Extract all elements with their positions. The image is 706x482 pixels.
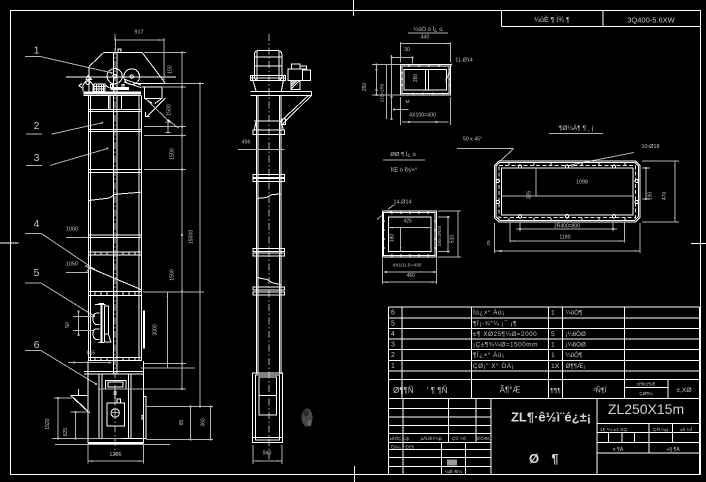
svg-text:1500: 1500	[167, 104, 173, 116]
svg-text:Ð£¶: Ð£¶	[405, 444, 414, 449]
svg-text:1000: 1000	[66, 227, 78, 233]
svg-text:»§ ¶Á: »§ ¶Á	[666, 446, 680, 453]
svg-text:360: 360	[201, 418, 207, 427]
svg-text:1520: 1520	[45, 418, 51, 429]
svg-text:¤ ¶Á: ¤ ¶Á	[613, 446, 624, 453]
svg-text:±h ¼f: ±h ¼f	[680, 427, 693, 433]
svg-text:260: 260	[413, 74, 419, 83]
svg-text:Ø¶¶Ñ: Ø¶¶Ñ	[393, 386, 414, 395]
svg-text:ÏŒ ò Ðý×°: ÏŒ ò Ðý×°	[391, 167, 418, 174]
svg-text:25: 25	[486, 240, 492, 246]
svg-text:10-Ø18: 10-Ø18	[642, 144, 660, 150]
svg-text:440: 440	[421, 35, 430, 41]
svg-text:±¶ XØ25¶¼Ø=2000: ±¶ XØ25¶¼Ø=2000	[473, 331, 537, 338]
svg-text:4X101.5=430: 4X101.5=430	[393, 262, 422, 268]
svg-text:¶¶¶: ¶¶¶	[550, 388, 561, 395]
svg-text:3: 3	[391, 342, 395, 349]
svg-text:14-Ø14: 14-Ø14	[394, 199, 412, 205]
svg-text:470: 470	[662, 192, 668, 201]
svg-text:2: 2	[391, 352, 395, 359]
svg-text:1: 1	[551, 352, 555, 359]
svg-text:¡¼6ÒØ: ¡¼6ÒØ	[566, 342, 586, 349]
svg-text:85: 85	[179, 420, 185, 426]
svg-text:15000: 15000	[189, 230, 195, 245]
svg-text:¶: ¶	[551, 451, 558, 466]
svg-text:Éè¼: Éè¼	[391, 443, 401, 449]
svg-text:±Ï¶X±¶Æ: ±Ï¶X±¶Æ	[637, 381, 656, 387]
svg-text:1500: 1500	[170, 148, 176, 160]
svg-text:5: 5	[391, 320, 395, 327]
svg-text:1: 1	[551, 310, 555, 317]
svg-text:¼ûÒ¶: ¼ûÒ¶	[566, 310, 583, 317]
svg-text:325: 325	[527, 191, 533, 200]
svg-text:50 x 45°: 50 x 45°	[463, 137, 482, 143]
svg-text:¼ûÒ¶: ¼ûÒ¶	[566, 352, 583, 359]
svg-text:6: 6	[391, 310, 395, 317]
svg-text:1286: 1286	[109, 452, 121, 458]
svg-text:1180: 1180	[559, 235, 570, 241]
svg-text:150: 150	[168, 65, 174, 74]
svg-text:180: 180	[389, 234, 395, 243]
svg-text:ÇØ¶¼: ÇØ¶¼	[639, 391, 652, 396]
svg-text:6: 6	[34, 339, 40, 351]
svg-text:190: 190	[648, 192, 654, 201]
svg-text:¶Ø¼À¶ ¶ ¸ j: ¶Ø¼À¶ ¶ ¸ j	[559, 123, 593, 132]
svg-text:1X: 1X	[551, 363, 560, 370]
svg-text:1050: 1050	[66, 262, 78, 268]
svg-text:¼ûÈ ¶ Ì¾ ¶: ¼ûÈ ¶ Ì¾ ¶	[534, 15, 570, 24]
svg-text:ÈÕÆÚ: ÈÕÆÚ	[477, 435, 492, 441]
svg-text:3000: 3000	[153, 324, 159, 336]
svg-text:ZL250X15m: ZL250X15m	[608, 401, 684, 417]
svg-text:5: 5	[34, 267, 40, 279]
svg-text:865: 865	[87, 351, 96, 357]
svg-text:ÇØ¡" X° ÒÀ¡: ÇØ¡" X° ÒÀ¡	[473, 361, 514, 370]
svg-text:¼ûÓ ó Ï¿ ú: ¼ûÓ ó Ï¿ ú	[414, 26, 443, 33]
svg-text:²Ñ¶Ï: ²Ñ¶Ï	[593, 386, 606, 395]
svg-text:240=2Ŕ20: 240=2Ŕ20	[437, 225, 442, 246]
svg-text:1098: 1098	[576, 180, 588, 186]
svg-text:3Q400-5.6XW: 3Q400-5.6XW	[627, 16, 675, 25]
svg-text:5: 5	[551, 331, 555, 338]
svg-text:1: 1	[551, 342, 555, 349]
svg-text:2: 2	[34, 120, 40, 132]
svg-text:ØØ ¶ Ï¿ ú: ØØ ¶ Ï¿ ú	[390, 151, 415, 158]
svg-text:825: 825	[63, 428, 69, 437]
svg-text:215=2Ŕ5: 215=2Ŕ5	[379, 83, 385, 102]
svg-text:¼Ø Æ¼: ¼Ø Æ¼	[445, 469, 462, 474]
svg-text:M: M	[406, 99, 410, 105]
svg-text:510: 510	[449, 235, 455, 244]
svg-text:940: 940	[263, 450, 272, 456]
svg-text:Ïü¿×° Àü¡: Ïü¿×° Àü¡	[473, 308, 505, 317]
svg-text:250: 250	[362, 83, 368, 92]
svg-text:917: 917	[134, 30, 143, 36]
svg-text:¡Ç±¶¾¼Ø=1500mm: ¡Ç±¶¾¼Ø=1500mm	[473, 342, 538, 349]
svg-text:±êÔÇ ¼þ: ±êÔÇ ¼þ	[390, 435, 410, 441]
svg-text:1500: 1500	[170, 269, 176, 281]
svg-text:3: 3	[34, 152, 40, 164]
svg-text:Ø: Ø	[529, 451, 539, 466]
svg-text:1: 1	[391, 363, 395, 370]
svg-text:4: 4	[34, 218, 40, 230]
svg-text:496: 496	[242, 140, 251, 146]
svg-text:4: 4	[391, 331, 395, 338]
svg-text:50: 50	[65, 322, 71, 328]
svg-text:1¶ ¹¼ ±1 XQ: 1¶ ¹¼ ±1 XQ	[600, 427, 627, 433]
svg-text:ÇÑ ¼g: ÇÑ ¼g	[653, 426, 668, 433]
svg-text:¶Ï¿×° Àü¡: ¶Ï¿×° Àü¡	[473, 350, 505, 359]
svg-text:Ø¶¶Æ¡: Ø¶¶Æ¡	[566, 363, 586, 370]
svg-text:460: 460	[407, 273, 416, 279]
svg-text:' ¶ ¶Ñ: ' ¶ ¶Ñ	[427, 386, 448, 395]
svg-text:30: 30	[404, 47, 410, 53]
svg-text:¸üÄÚÈÝ¼þ: ¸üÄÚÈÝ¼þ	[419, 435, 442, 442]
svg-text:¶Ï¡-¾°¼ ¡¯ ¡¶: ¶Ï¡-¾°¼ ¡¯ ¡¶	[473, 319, 517, 327]
svg-text:11-Ø14: 11-Ø14	[455, 58, 473, 64]
svg-text:±,XØ: ±,XØ	[676, 387, 692, 394]
svg-text:425: 425	[403, 219, 412, 225]
svg-text:2Ŕ400=800: 2Ŕ400=800	[554, 222, 580, 229]
svg-text:4X100=400: 4X100=400	[409, 112, 436, 118]
svg-text:1: 1	[34, 45, 40, 57]
svg-text:¡¼6ÒØ: ¡¼6ÒØ	[566, 331, 586, 338]
svg-text:Ã¶°Æ: Ã¶°Æ	[500, 386, 521, 395]
svg-text:Ç© ×Ö: Ç© ×Ö	[452, 435, 467, 441]
svg-text:ZL¶·ê½ì¨é¿±¡: ZL¶·ê½ì¨é¿±¡	[511, 410, 591, 425]
